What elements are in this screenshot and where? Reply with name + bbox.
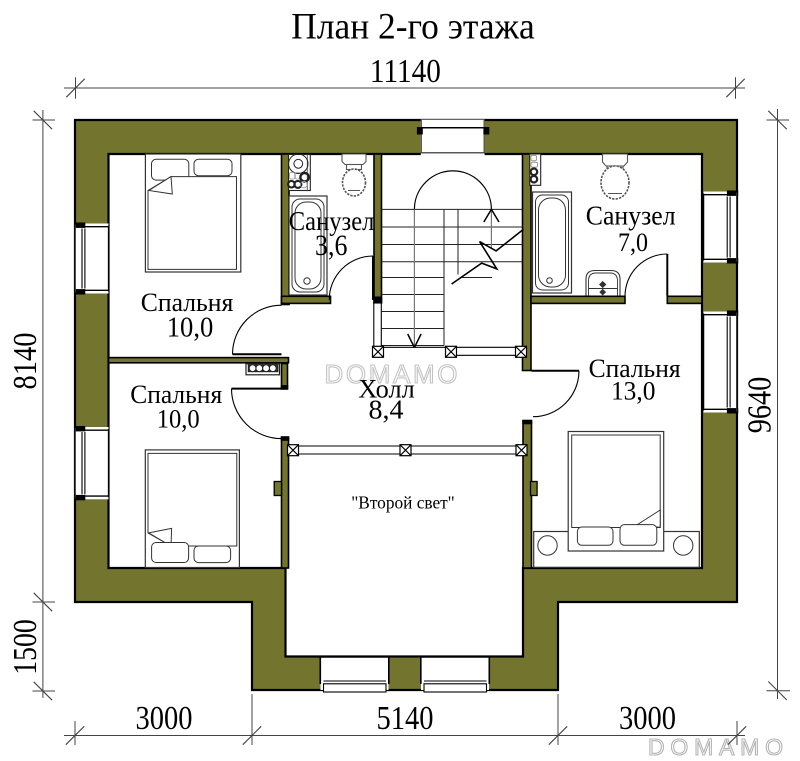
svg-text:8140: 8140 <box>7 333 44 390</box>
svg-text:1500: 1500 <box>7 619 44 675</box>
svg-text:3,6: 3,6 <box>315 229 348 262</box>
svg-text:8,4: 8,4 <box>369 394 405 424</box>
svg-text:3000: 3000 <box>136 700 193 737</box>
svg-text:"Второй свет": "Второй свет" <box>351 492 455 512</box>
svg-text:13,0: 13,0 <box>611 376 656 405</box>
svg-text:7,0: 7,0 <box>618 228 648 257</box>
svg-text:11140: 11140 <box>370 53 441 90</box>
svg-text:10,0: 10,0 <box>157 404 200 433</box>
svg-text:Санузел: Санузел <box>586 200 676 230</box>
svg-text:3000: 3000 <box>619 700 676 737</box>
svg-text:10,0: 10,0 <box>167 313 214 344</box>
svg-text:5140: 5140 <box>377 700 434 737</box>
svg-text:План 2-го этажа: План 2-го этажа <box>291 6 535 47</box>
svg-text:9640: 9640 <box>742 377 779 434</box>
